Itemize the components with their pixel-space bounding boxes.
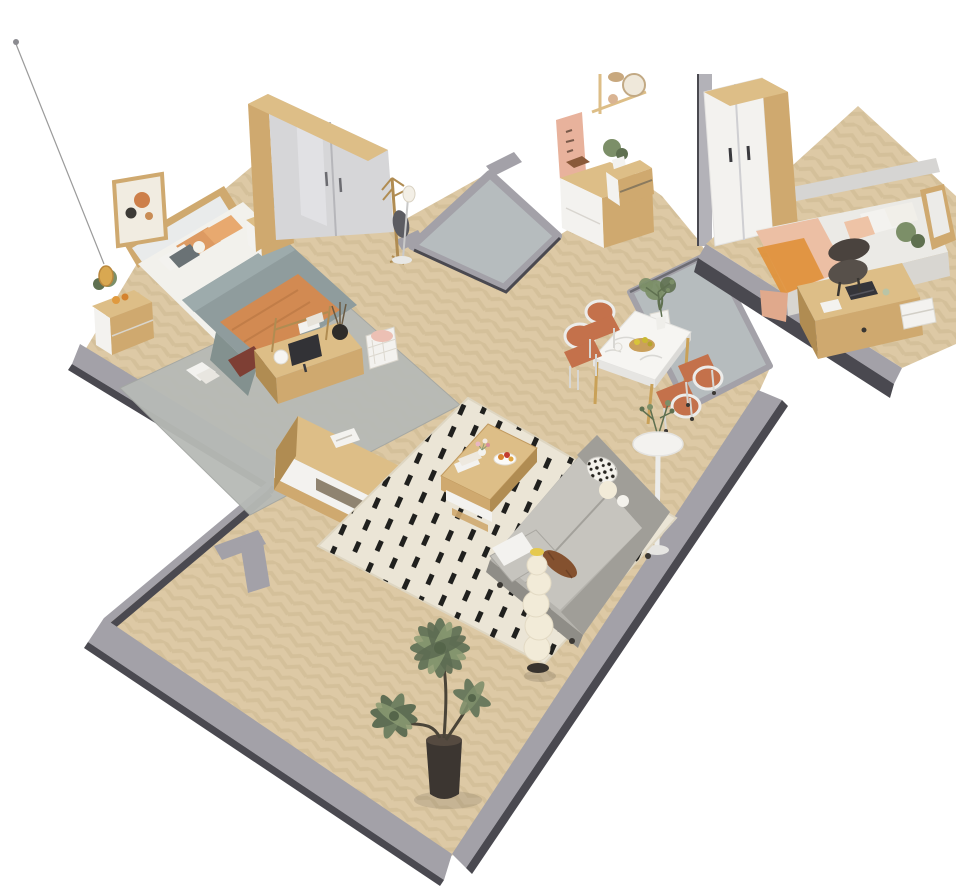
desk-knob: [862, 328, 867, 333]
side-table-top: [633, 432, 683, 456]
cream-ball-pillow: [599, 481, 617, 499]
entry-wall-stub: [486, 152, 522, 176]
sliding-wardrobe: [248, 94, 394, 252]
pillow-ball: [193, 241, 205, 253]
black-pot: [332, 324, 348, 340]
apartment-render: Scandinavian-style cutaway apartment wit…: [0, 0, 956, 886]
decor-shelf: [592, 72, 646, 114]
wall-art: [114, 174, 166, 246]
dome-lamp: [274, 350, 288, 364]
wall-hanging-pink: [556, 112, 586, 180]
palm-leaves-top: [410, 618, 470, 678]
pendant-shade: [99, 266, 113, 286]
fruit: [112, 296, 120, 304]
table-cup: [614, 343, 622, 351]
fruit-2: [122, 294, 129, 301]
wardrobe-two-door: [704, 78, 798, 246]
pink-blanket: [371, 330, 393, 342]
round-mirror: [623, 74, 645, 96]
desk-cup: [883, 289, 890, 296]
lamp-top-disc: [530, 548, 544, 556]
pendant-lamp: [13, 39, 113, 286]
white-ball-pillow: [617, 495, 629, 507]
blanket-drape: [760, 290, 788, 322]
palm-pot: [426, 740, 462, 799]
entry-hall: [556, 72, 654, 248]
apartment-isometric-svg: [0, 0, 956, 886]
